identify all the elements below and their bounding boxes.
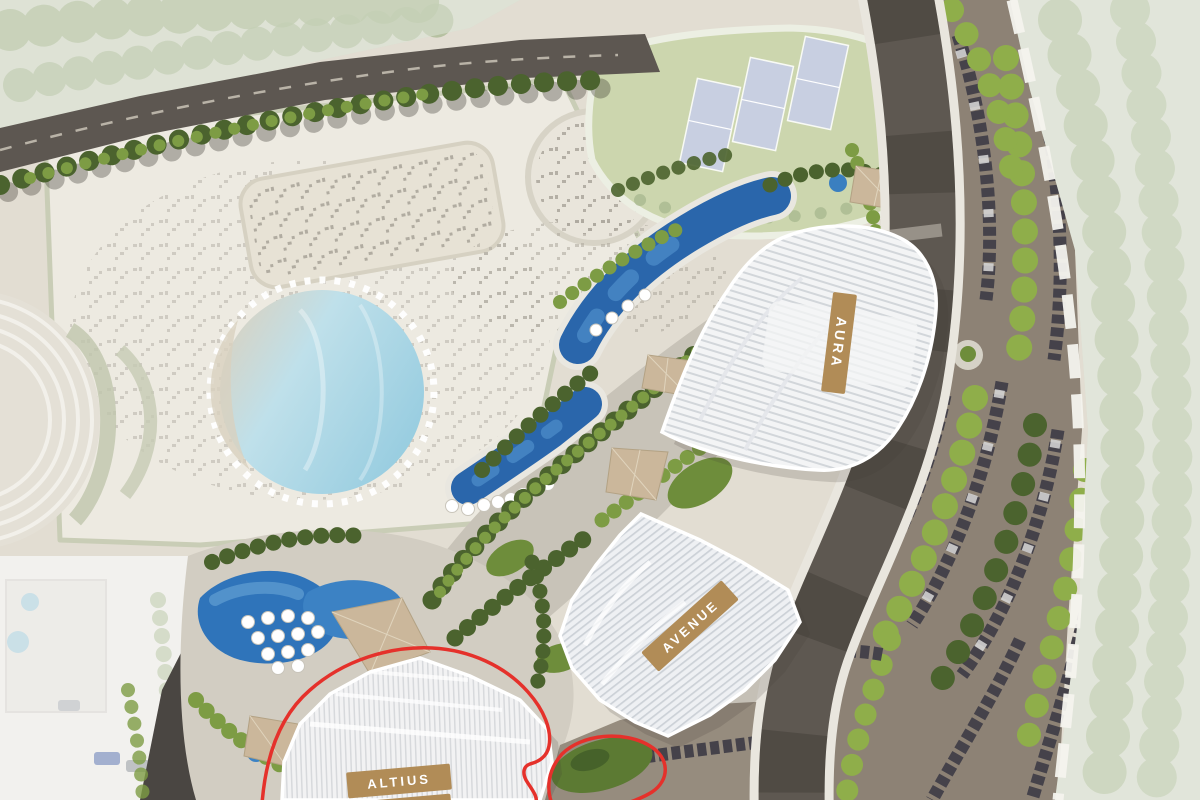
site-plan-rendering: AURA AVENUE ALTIUS [0, 0, 1200, 800]
